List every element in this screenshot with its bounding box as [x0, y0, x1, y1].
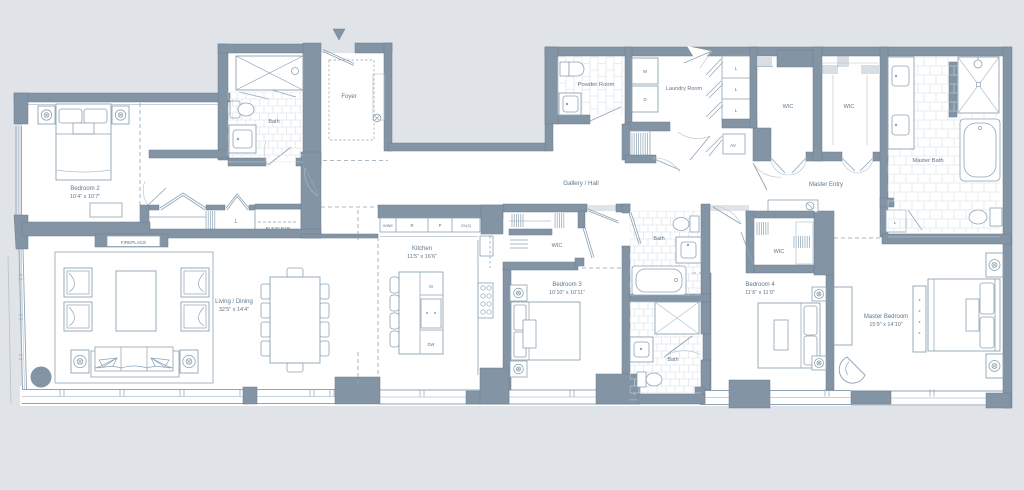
svg-text:Master Bath: Master Bath	[912, 158, 943, 164]
svg-text:WINE: WINE	[383, 224, 393, 228]
svg-text:Laundry Room: Laundry Room	[666, 86, 702, 92]
svg-text:Master Bedroom: Master Bedroom	[864, 314, 908, 320]
svg-text:Kitchen: Kitchen	[412, 246, 432, 252]
svg-text:Bedroom 4: Bedroom 4	[745, 282, 775, 288]
svg-text:Bath: Bath	[268, 119, 279, 125]
svg-text:Bedroom 3: Bedroom 3	[552, 282, 582, 288]
svg-text:R: R	[410, 223, 413, 228]
svg-text:15’9” x 14’10”: 15’9” x 14’10”	[869, 322, 902, 328]
svg-text:11’6” x 11’0”: 11’6” x 11’0”	[745, 290, 775, 296]
svg-text:DW: DW	[428, 342, 435, 347]
svg-text:OV(2): OV(2)	[461, 224, 472, 228]
svg-text:AV: AV	[730, 143, 736, 148]
svg-text:Bath: Bath	[667, 357, 678, 363]
svg-text:10’4” x 10’7”: 10’4” x 10’7”	[70, 194, 100, 200]
svg-text:WIC: WIC	[783, 104, 794, 110]
svg-text:Gallery / Hall: Gallery / Hall	[563, 180, 598, 187]
svg-text:WIC: WIC	[552, 243, 563, 249]
svg-text:Foyer: Foyer	[341, 94, 356, 100]
svg-text:L: L	[235, 219, 238, 225]
svg-text:FIREPLACE: FIREPLACE	[121, 240, 147, 245]
svg-text:Powder Room: Powder Room	[578, 82, 615, 88]
svg-text:WIC: WIC	[844, 104, 855, 110]
svg-text:WIC: WIC	[774, 249, 785, 255]
svg-text:11’5” x 16’6”: 11’5” x 16’6”	[407, 254, 437, 260]
svg-text:Living / Dining: Living / Dining	[215, 299, 253, 305]
svg-text:10’10” x 10’11”: 10’10” x 10’11”	[549, 290, 585, 296]
svg-text:P: P	[439, 223, 442, 228]
svg-text:Bedroom 2: Bedroom 2	[70, 186, 100, 192]
svg-text:32’5” x 14’4”: 32’5” x 14’4”	[219, 307, 249, 313]
svg-text:Bath: Bath	[653, 236, 664, 242]
svg-text:Master Entry: Master Entry	[809, 182, 843, 188]
svg-text:M: M	[429, 284, 433, 289]
